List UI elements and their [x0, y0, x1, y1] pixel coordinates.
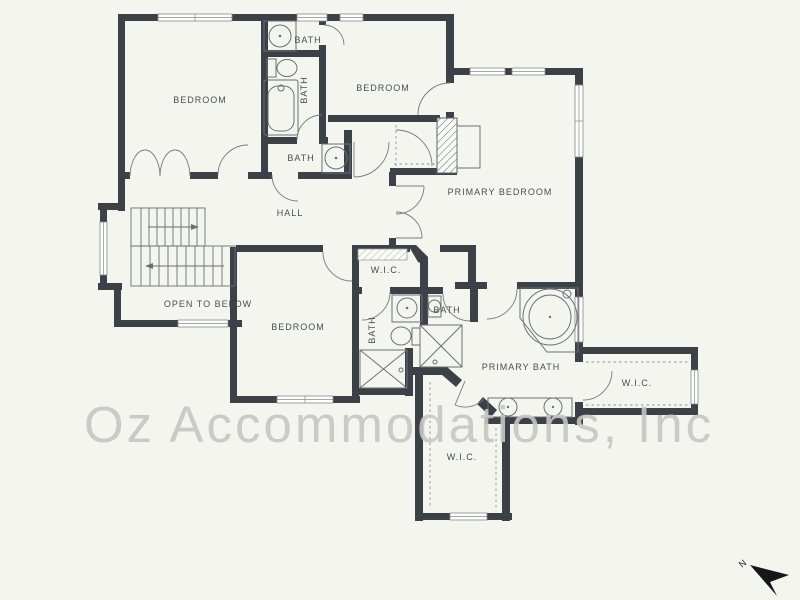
- room-label-bath-2: BATH: [299, 76, 309, 103]
- toilet-icon: [267, 59, 297, 77]
- bathtub-icon: [264, 80, 298, 135]
- room-label-hall: HALL: [277, 208, 304, 218]
- staircase: [131, 208, 235, 286]
- corner-tub-icon: [520, 288, 578, 352]
- room-label-wic-1: W.I.C.: [371, 265, 402, 275]
- floor-plan-page: BEDROOM BEDROOM BEDROOM PRIMARY BEDROOM …: [0, 0, 800, 600]
- toilet-icon: [391, 327, 420, 345]
- shower-icon: [420, 325, 462, 367]
- fireplace-icon: [437, 118, 480, 173]
- room-label-wic-3: W.I.C.: [447, 452, 478, 462]
- watermark-text: Oz Accommodations, Inc: [84, 396, 714, 453]
- room-label-open-to-below: OPEN TO BELOW: [164, 299, 252, 309]
- room-label-bath-1: BATH: [294, 35, 321, 45]
- room-label-bedroom-2: BEDROOM: [356, 83, 410, 93]
- room-label-wic-2: W.I.C.: [622, 378, 653, 388]
- closet-shelf: [358, 249, 407, 260]
- room-label-primary-bath: PRIMARY BATH: [482, 362, 561, 372]
- shower-icon: [360, 350, 407, 388]
- room-label-primary-bedroom: PRIMARY BEDROOM: [448, 187, 553, 197]
- room-label-bath-5: BATH: [433, 305, 460, 315]
- room-label-bedroom-3: BEDROOM: [271, 322, 325, 332]
- room-label-bath-4: BATH: [367, 316, 377, 343]
- north-arrow-icon: N: [737, 558, 789, 596]
- room-label-bedroom-1: BEDROOM: [173, 95, 227, 105]
- floor-plan-drawing: BEDROOM BEDROOM BEDROOM PRIMARY BEDROOM …: [0, 0, 800, 600]
- room-label-bath-3: BATH: [287, 153, 314, 163]
- north-label: N: [737, 558, 748, 570]
